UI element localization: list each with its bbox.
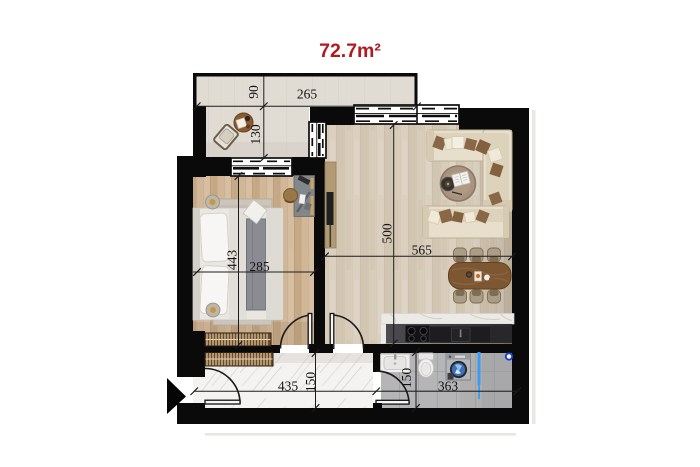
svg-text:150: 150 (399, 368, 414, 389)
svg-text:150: 150 (303, 372, 318, 393)
svg-text:443: 443 (225, 250, 240, 271)
svg-text:90: 90 (246, 85, 261, 99)
svg-text:130: 130 (248, 124, 263, 145)
svg-text:435: 435 (278, 379, 299, 394)
svg-text:265: 265 (297, 87, 318, 102)
svg-text:565: 565 (412, 243, 433, 258)
svg-text:72.7m²: 72.7m² (319, 40, 381, 62)
svg-text:500: 500 (380, 223, 395, 244)
svg-text:285: 285 (249, 259, 270, 274)
svg-text:363: 363 (438, 379, 459, 394)
